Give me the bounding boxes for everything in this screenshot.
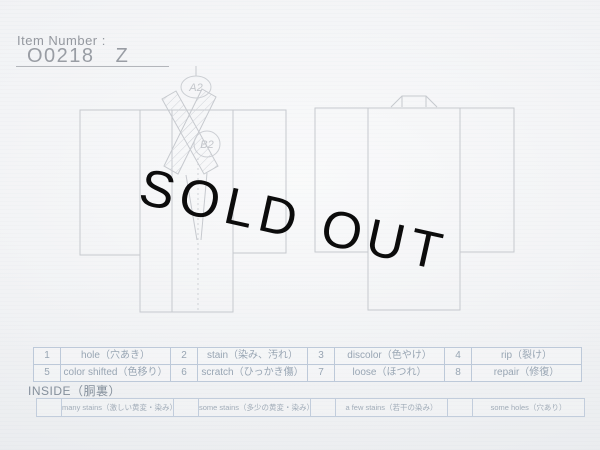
defect-num: 2 [171, 348, 198, 365]
defect-num: 3 [308, 348, 335, 365]
inside-condition-row: many stains（激しい黄変・染み） some stains（多少の黄変・… [36, 398, 585, 417]
defect-label: discolor（色やけ） [335, 348, 445, 365]
defect-label: hole（穴あき） [61, 348, 171, 365]
back-collar [391, 96, 437, 107]
defect-num: 1 [34, 348, 61, 365]
defect-num: 5 [34, 365, 61, 382]
inside-checkbox-cell [448, 399, 473, 417]
defect-label: repair（修復） [472, 365, 582, 382]
inside-checkbox-cell [37, 399, 62, 417]
defect-num: 8 [445, 365, 472, 382]
inside-option-label: a few stains（若干の染み） [336, 399, 448, 417]
inside-option-label: some stains（多少の黄変・染み） [199, 399, 311, 417]
annotation-a2-label: A2 [188, 82, 202, 94]
defect-label: stain（染み、汚れ） [198, 348, 308, 365]
defect-num: 7 [308, 365, 335, 382]
annotation-b2-label: B2 [200, 139, 213, 151]
defect-label: color shifted（色移り） [61, 365, 171, 382]
defect-label: scratch（ひっかき傷） [198, 365, 308, 382]
defect-legend-table: 1 hole（穴あき） 2 stain（染み、汚れ） 3 discolor（色や… [33, 347, 582, 382]
defect-num: 6 [171, 365, 198, 382]
inside-option-label: some holes（穴あり） [473, 399, 585, 417]
inside-section-label: INSIDE（胴裏） [28, 382, 121, 399]
defect-label: loose（ほつれ） [335, 365, 445, 382]
defect-label: rip（裂け） [472, 348, 582, 365]
back-right-sleeve [460, 108, 514, 252]
inside-checkbox-cell [311, 399, 336, 417]
inside-option-label: many stains（激しい黄変・染み） [62, 399, 174, 417]
back-body-panel [368, 108, 460, 310]
sold-listing-scan: Item Number : O0218 Z A2 [0, 0, 600, 450]
front-left-sleeve [80, 110, 140, 255]
inside-checkbox-cell [174, 399, 199, 417]
defect-num: 4 [445, 348, 472, 365]
